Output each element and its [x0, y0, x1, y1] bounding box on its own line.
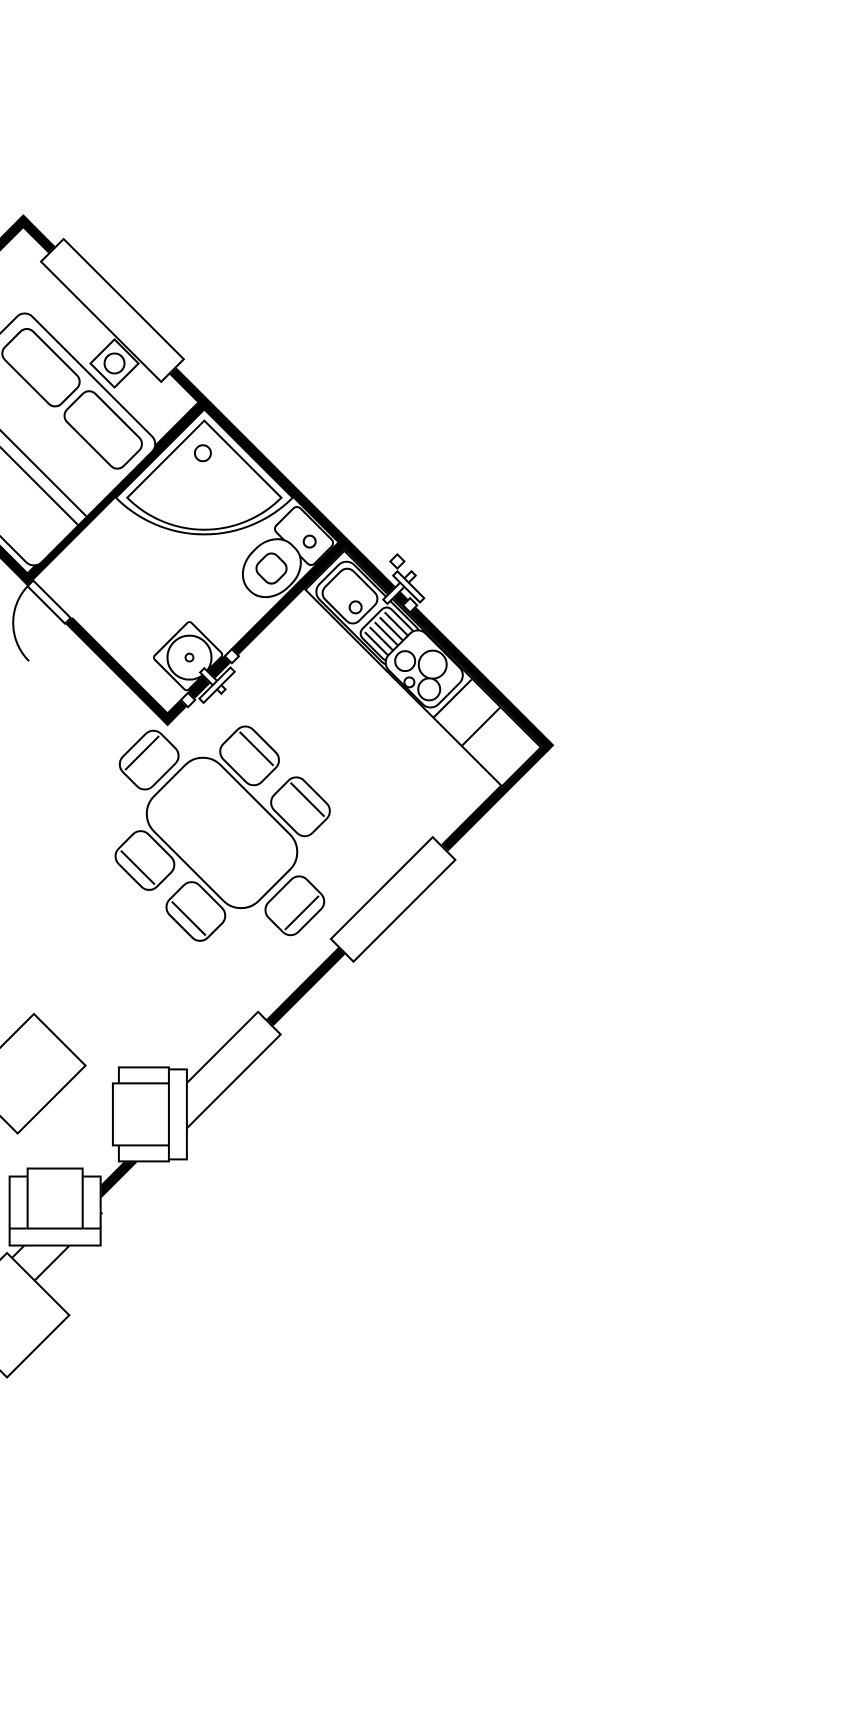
armchair-2-seat — [27, 1168, 84, 1230]
armchair-2-armrest-left — [9, 1176, 29, 1230]
window-living-1 — [330, 836, 457, 963]
armchair-1 — [112, 1066, 188, 1162]
kitchen-faucet-square-1 — [389, 553, 406, 570]
coffee-table-rug — [0, 1013, 87, 1135]
armchair-1-armrest-bottom — [118, 1144, 170, 1162]
armchair-2 — [9, 1168, 102, 1247]
door-swing-arc — [0, 569, 117, 739]
armchair-2-armrest-right — [82, 1176, 102, 1230]
armchair-1-seat — [112, 1082, 170, 1146]
floor-plan — [0, 0, 849, 1697]
wall-south-east-segment-2 — [267, 948, 345, 1026]
armchair-1-back — [168, 1068, 188, 1160]
floor-plan-canvas — [0, 0, 855, 1709]
